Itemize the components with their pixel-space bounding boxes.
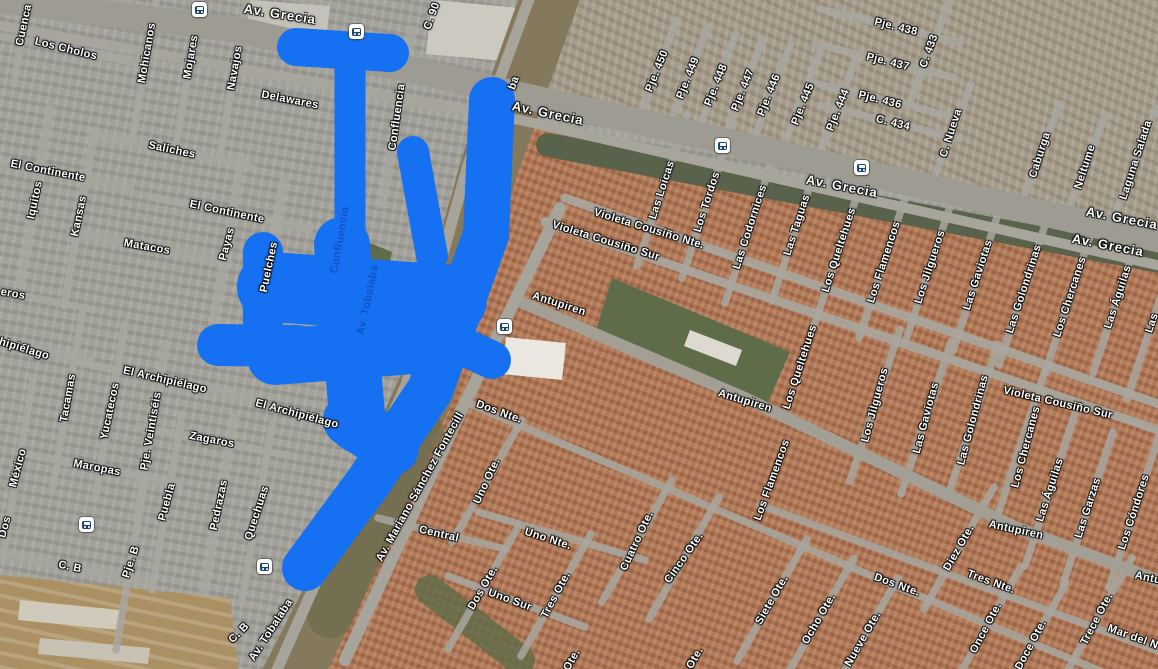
transit-stops-layer — [0, 0, 1158, 669]
transit-stop-icon[interactable] — [715, 138, 730, 153]
transit-stop-icon[interactable] — [854, 160, 869, 175]
transit-stop-icon[interactable] — [192, 2, 207, 17]
bus-icon — [82, 521, 91, 529]
transit-stop-icon[interactable] — [497, 319, 512, 334]
bus-icon — [857, 164, 866, 172]
transit-stop-icon[interactable] — [349, 24, 364, 39]
transit-stop-icon[interactable] — [79, 517, 94, 532]
bus-icon — [260, 563, 269, 571]
bus-icon — [195, 6, 204, 14]
satellite-map-canvas[interactable]: CuencaLos CholosMohicanosMojaresNavajosA… — [0, 0, 1158, 669]
transit-stop-icon[interactable] — [257, 559, 272, 574]
bus-icon — [500, 323, 509, 331]
bus-icon — [352, 28, 361, 36]
bus-icon — [718, 142, 727, 150]
